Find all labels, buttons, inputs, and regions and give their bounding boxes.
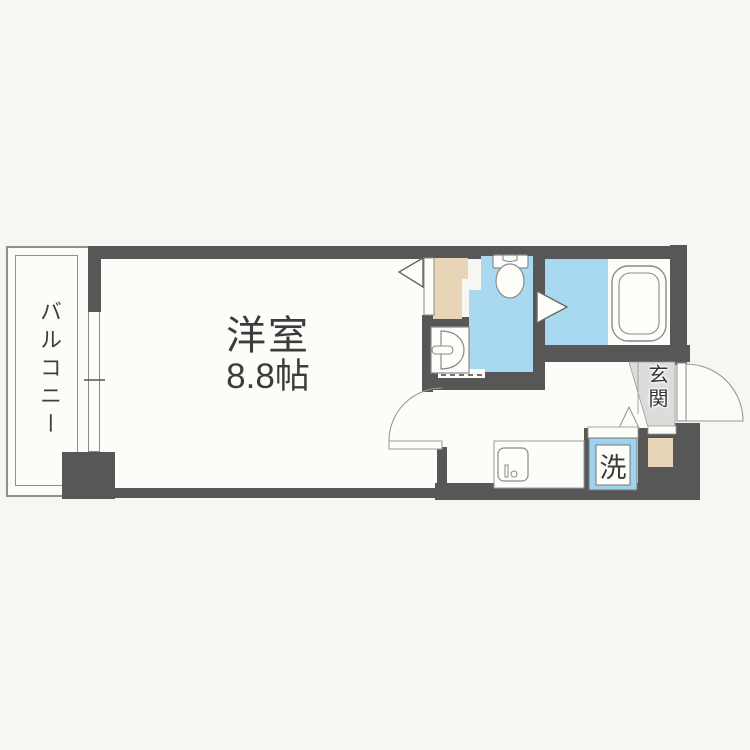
- laundry-label: 洗: [589, 445, 637, 485]
- entrance-step: [648, 426, 676, 434]
- main-room-size: 8.8帖: [168, 358, 368, 397]
- entrance-swing-triangle-icon: [619, 407, 639, 428]
- fixtures-layer: [0, 0, 750, 750]
- room-door: [389, 388, 442, 449]
- main-room-label: 洋室 8.8帖: [168, 314, 368, 397]
- main-room-name: 洋室: [168, 314, 368, 358]
- shoe-box: [648, 438, 673, 467]
- balcony-label: バルコニー: [33, 300, 65, 440]
- door-swing-triangle-icon: [399, 258, 423, 287]
- washbasin-icon: [431, 327, 469, 373]
- door-arc: [389, 388, 442, 441]
- entrance-door-arc: [686, 364, 743, 421]
- closet-door: [399, 258, 434, 315]
- entrance-label: 玄関: [642, 364, 671, 412]
- faucet-icon: [505, 465, 508, 477]
- entrance-door: [677, 363, 743, 421]
- bathtub-icon: [612, 266, 666, 341]
- floorplan: バルコニー 洋室 8.8帖 玄関 洗: [0, 0, 750, 750]
- kitchen-counter: [494, 441, 584, 488]
- bathroom-door-triangle-icon: [537, 291, 567, 323]
- closet: [433, 258, 468, 319]
